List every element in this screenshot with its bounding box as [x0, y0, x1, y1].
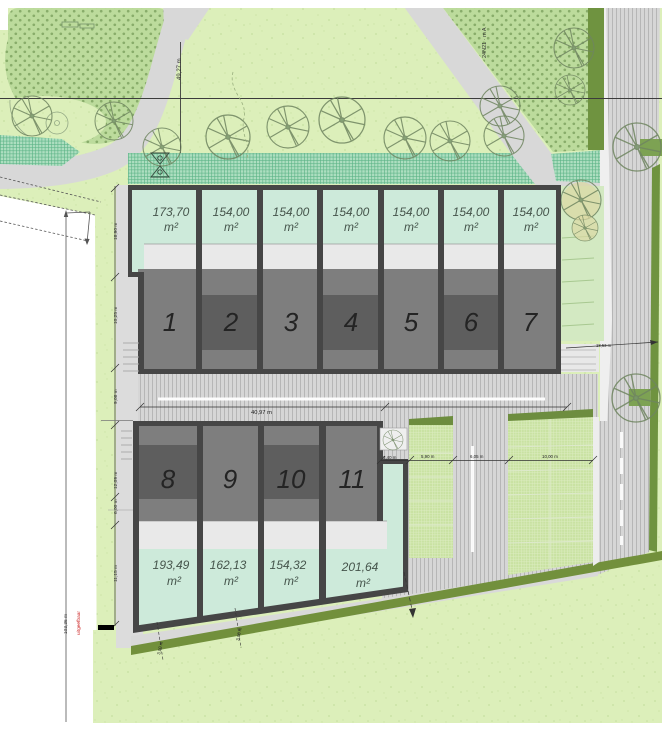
svg-text:3,40 m: 3,40 m — [383, 455, 397, 460]
svg-text:7: 7 — [523, 307, 539, 337]
svg-text:m²: m² — [224, 220, 239, 234]
svg-text:m²: m² — [344, 220, 359, 234]
svg-text:103,36 m: 103,36 m — [63, 614, 69, 634]
svg-text:m²: m² — [167, 574, 182, 588]
svg-text:6: 6 — [464, 307, 479, 337]
svg-text:10,00 m: 10,00 m — [542, 454, 558, 459]
svg-text:11,15 m: 11,15 m — [113, 565, 119, 582]
svg-text:201,64: 201,64 — [341, 560, 379, 574]
svg-text:24N21 · m A: 24N21 · m A — [482, 27, 488, 58]
svg-text:uitgeefbaar: uitgeefbaar — [76, 611, 82, 635]
svg-text:1: 1 — [163, 307, 177, 337]
svg-text:154,00: 154,00 — [513, 205, 550, 219]
svg-text:40,97 m: 40,97 m — [251, 410, 272, 416]
svg-text:3: 3 — [284, 307, 299, 337]
svg-text:162,13: 162,13 — [210, 558, 247, 572]
svg-text:8: 8 — [161, 464, 176, 494]
svg-text:154,00: 154,00 — [273, 205, 310, 219]
svg-text:9: 9 — [223, 464, 237, 494]
svg-text:m²: m² — [524, 220, 539, 234]
svg-text:m²: m² — [164, 220, 179, 234]
svg-text:10: 10 — [277, 464, 306, 494]
svg-text:2: 2 — [223, 307, 239, 337]
svg-text:154,00: 154,00 — [333, 205, 370, 219]
svg-text:18,53 m: 18,53 m — [596, 343, 612, 348]
svg-text:154,00: 154,00 — [453, 205, 490, 219]
svg-text:12,09 m: 12,09 m — [113, 472, 119, 489]
svg-text:9,08 m: 9,08 m — [113, 389, 119, 404]
svg-text:193,49: 193,49 — [153, 558, 190, 572]
svg-text:154,32: 154,32 — [270, 558, 307, 572]
svg-text:18,90 m: 18,90 m — [113, 223, 119, 240]
svg-text:m²: m² — [284, 574, 299, 588]
svg-text:154,00: 154,00 — [213, 205, 250, 219]
svg-text:m²: m² — [464, 220, 479, 234]
svg-text:49,27 m: 49,27 m — [177, 58, 183, 80]
svg-text:6,05 m: 6,05 m — [470, 454, 484, 459]
svg-text:154,00: 154,00 — [393, 205, 430, 219]
svg-text:6,00 m: 6,00 m — [113, 499, 119, 514]
svg-text:m²: m² — [356, 576, 371, 590]
svg-text:11: 11 — [339, 464, 366, 494]
svg-text:4: 4 — [344, 307, 358, 337]
svg-text:173,70: 173,70 — [153, 205, 190, 219]
svg-text:m²: m² — [224, 574, 239, 588]
svg-text:m²: m² — [284, 220, 299, 234]
svg-text:5: 5 — [404, 307, 419, 337]
svg-text:10,25 m: 10,25 m — [113, 307, 119, 324]
svg-text:5,90 m: 5,90 m — [421, 454, 435, 459]
svg-text:m²: m² — [404, 220, 419, 234]
